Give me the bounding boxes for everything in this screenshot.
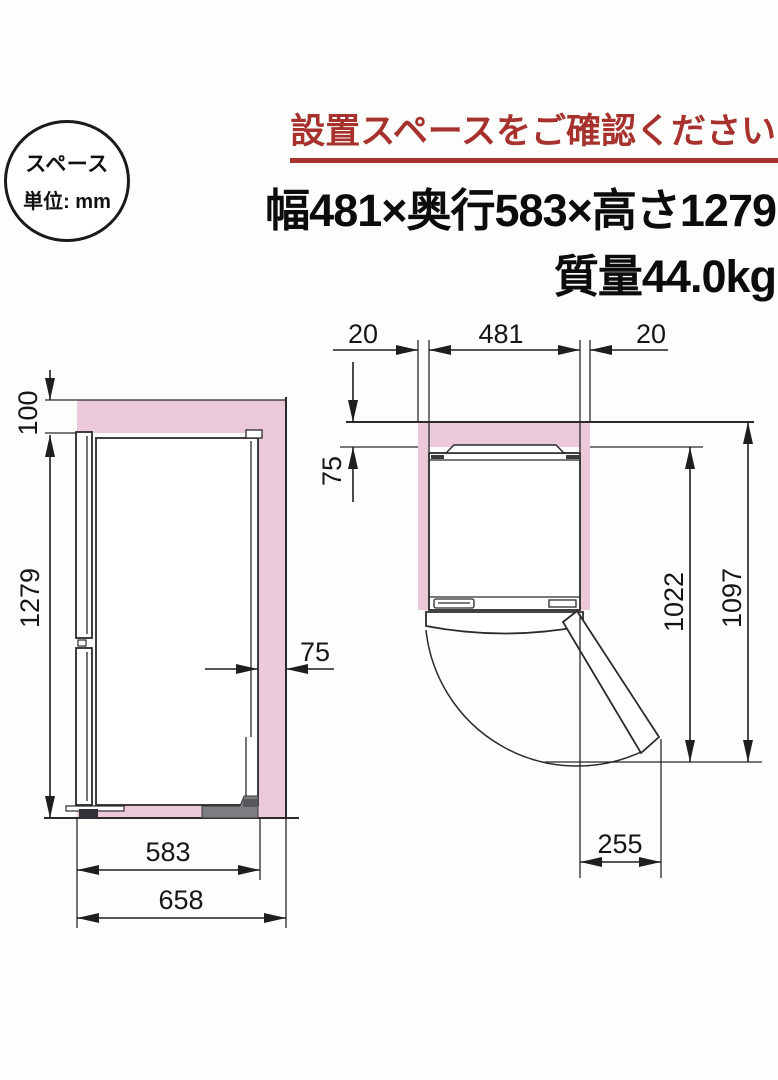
dim-label-right-clearance: 20	[636, 319, 666, 349]
side-view-diagram: 100 1279 75 583 658	[13, 370, 334, 928]
arrow-down-1279	[45, 796, 55, 818]
fridge-side-outline	[66, 430, 262, 819]
cabinet-body	[96, 438, 258, 805]
lower-door	[76, 648, 92, 805]
dim-label-total-open-depth: 1097	[717, 568, 747, 628]
fridge-top-outline	[429, 445, 580, 610]
cabinet-top-body	[429, 453, 580, 610]
arrow-down-1097	[743, 740, 753, 762]
front-hinge-plate	[549, 600, 576, 607]
arrow-up-1097	[743, 422, 753, 444]
arrow-right-583	[238, 865, 260, 875]
arrow-left-583	[77, 865, 99, 875]
upper-door	[76, 432, 92, 638]
dim-label-door-open-depth: 1022	[659, 572, 689, 632]
dim-label-left-clearance: 20	[348, 319, 378, 349]
arrow-down-1022	[685, 740, 695, 762]
arrow-left-658	[77, 913, 99, 923]
arrow-20-right	[590, 345, 612, 355]
arrow-20-left	[396, 345, 418, 355]
rear-hinge-right	[566, 455, 579, 459]
arrow-up-top75	[348, 447, 358, 469]
arrow-up-1279	[45, 435, 55, 457]
arrow-down-100	[45, 378, 55, 400]
dim-label-total-depth: 658	[158, 885, 203, 915]
arrow-down-top75	[348, 400, 358, 422]
cabinet-rear-bump	[446, 445, 564, 453]
installation-space-figure: スペース 単位: mm 設置スペースをご確認ください 幅481×奥行583×高さ…	[0, 0, 778, 1080]
rear-hinge-left	[431, 455, 444, 459]
top-hinge-cover	[246, 430, 262, 438]
arrow-up-1022	[685, 447, 695, 469]
compressor-block	[243, 799, 258, 807]
dim-label-width: 481	[478, 319, 523, 349]
arrow-481-right	[558, 345, 580, 355]
top-view-diagram: 20 481 20 75	[317, 319, 762, 878]
dim-label-depth: 583	[145, 837, 190, 867]
dim-label-door-protrusion: 255	[597, 829, 642, 859]
door-gap-grip	[78, 640, 86, 646]
top-clearance-left	[418, 447, 429, 610]
arrow-right-658	[264, 913, 286, 923]
installation-diagrams: 100 1279 75 583 658	[0, 0, 778, 1080]
front-foot	[79, 809, 98, 819]
door-open	[563, 611, 659, 753]
top-clearance-rear	[418, 422, 590, 447]
dim-label-height: 1279	[15, 568, 45, 628]
dim-label-rear-clearance: 75	[300, 637, 330, 667]
dim-label-top-clearance: 100	[13, 390, 43, 435]
dim-label-top-rear-clearance: 75	[317, 456, 347, 486]
door-closed	[426, 612, 583, 634]
arrow-481-left	[429, 345, 451, 355]
